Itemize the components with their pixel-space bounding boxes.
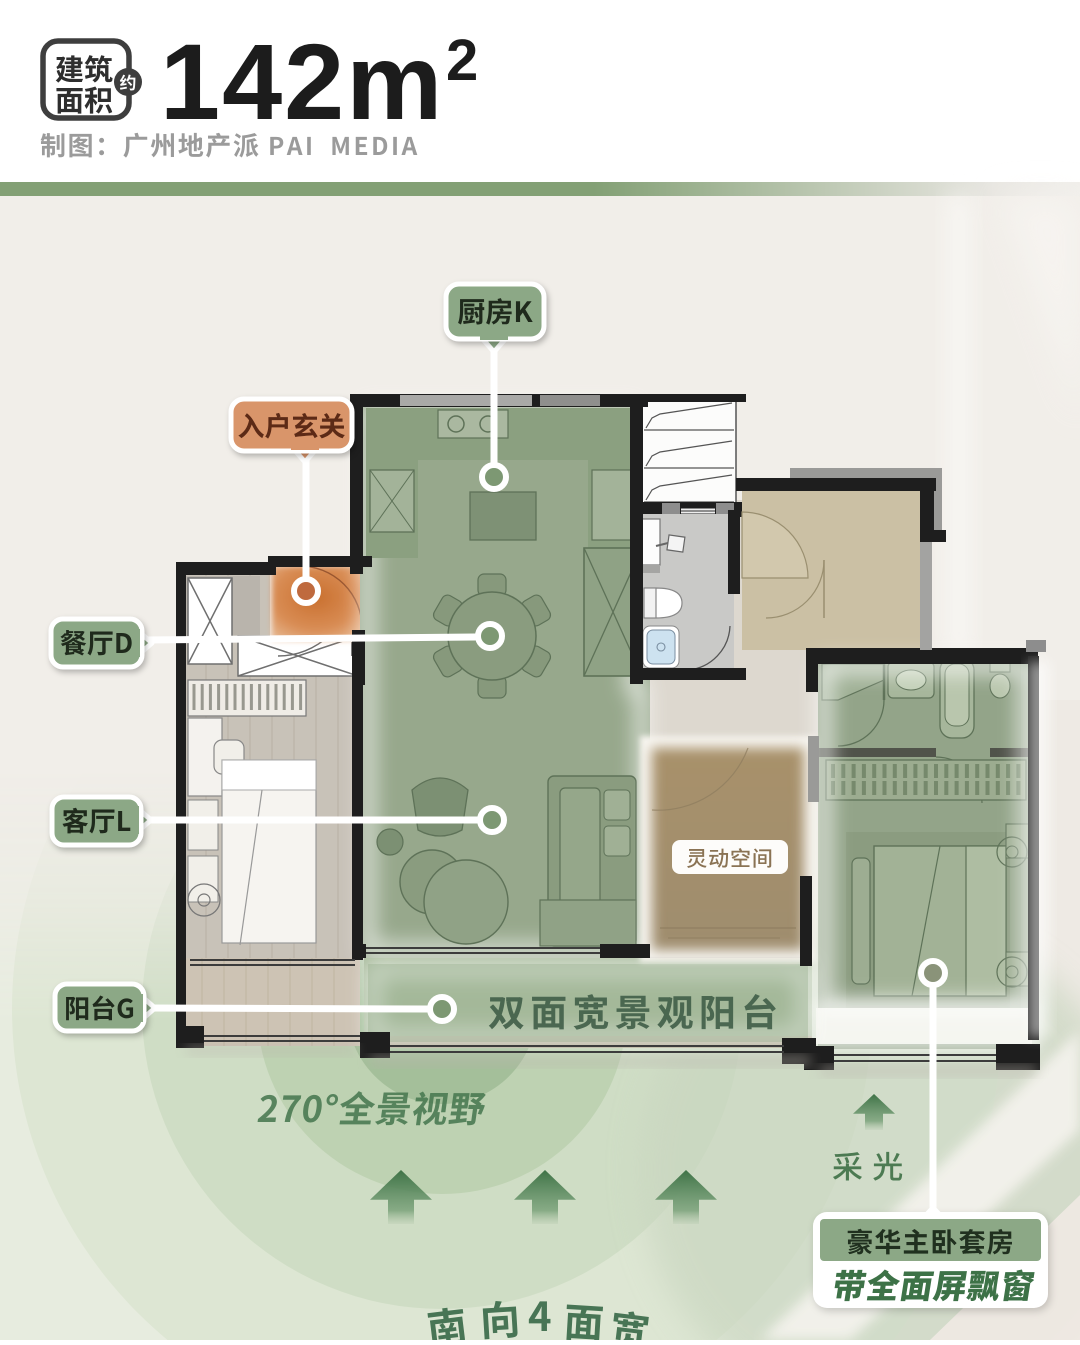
svg-text:142m: 142m xyxy=(160,21,444,142)
svg-text:2: 2 xyxy=(446,28,478,93)
